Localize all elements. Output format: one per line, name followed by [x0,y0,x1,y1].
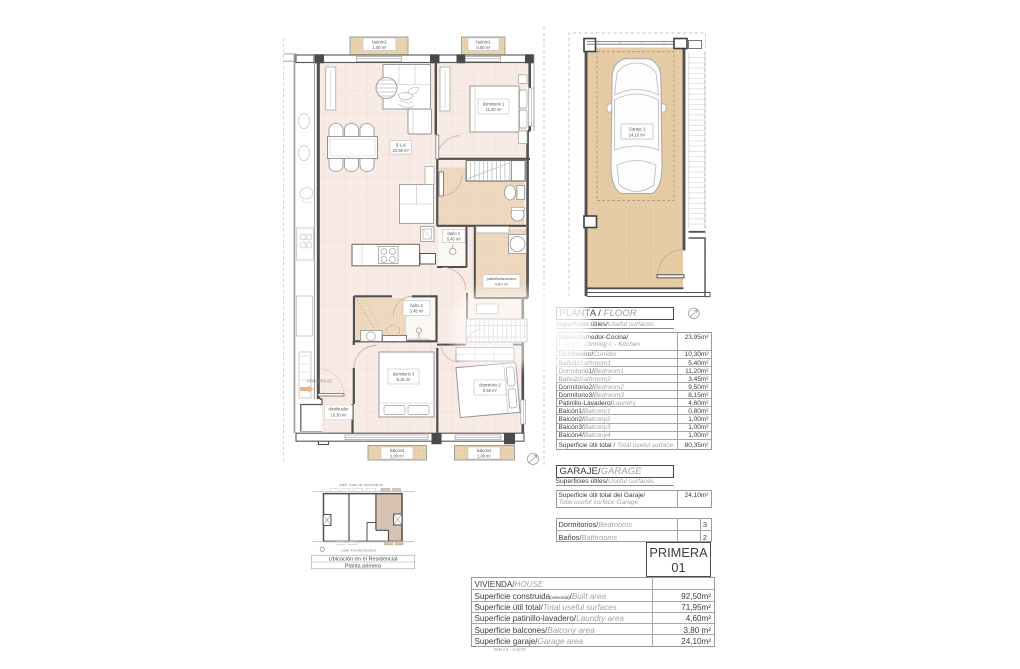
svg-text:8,15 m²: 8,15 m² [397,377,412,382]
svg-text:balcón4: balcón4 [477,448,492,453]
svg-text:S-L-K: S-L-K [395,142,406,147]
svg-text:dormitorio 2: dormitorio 2 [479,383,501,388]
svg-text:11,20 m²: 11,20 m² [486,107,502,112]
svg-text:calle Juan de Almendros: calle Juan de Almendros [339,482,383,487]
svg-text:1,00 m²: 1,00 m² [373,45,388,50]
svg-text:4,60 m²: 4,60 m² [495,282,509,287]
svg-text:Ubicación en el Residencial: Ubicación en el Residencial [329,557,398,563]
svg-text:5,40 m²: 5,40 m² [447,237,462,242]
svg-text:baño 1: baño 1 [448,231,461,236]
svg-text:1,00 m²: 1,00 m² [390,454,405,459]
svg-text:0,80 m²: 0,80 m² [477,45,492,50]
svg-text:dormitorio 1: dormitorio 1 [483,102,505,107]
svg-text:balcón1: balcón1 [476,40,491,45]
svg-text:Planta primera: Planta primera [345,564,382,570]
svg-text:distribuidor: distribuidor [328,407,349,412]
svg-text:calle Fonda Benitez: calle Fonda Benitez [341,547,376,552]
svg-text:Garaje 1: Garaje 1 [629,127,646,132]
svg-text:23,95 m²: 23,95 m² [393,148,410,153]
svg-text:dormitorio 3: dormitorio 3 [393,372,415,377]
svg-text:baño 2: baño 2 [410,303,423,308]
svg-text:balcón2: balcón2 [372,40,387,45]
svg-text:patinillo/lavadero: patinillo/lavadero [486,276,517,281]
svg-text:3,45 m²: 3,45 m² [410,309,425,314]
svg-text:balcón3: balcón3 [390,448,405,453]
svg-text:PRIMERA 01: PRIMERA 01 [307,379,333,384]
svg-text:10,30 m²: 10,30 m² [330,413,347,418]
svg-text:9,50 m²: 9,50 m² [483,388,498,393]
svg-text:24,10 m²: 24,10 m² [629,133,646,138]
svg-text:1,00 m²: 1,00 m² [477,454,492,459]
